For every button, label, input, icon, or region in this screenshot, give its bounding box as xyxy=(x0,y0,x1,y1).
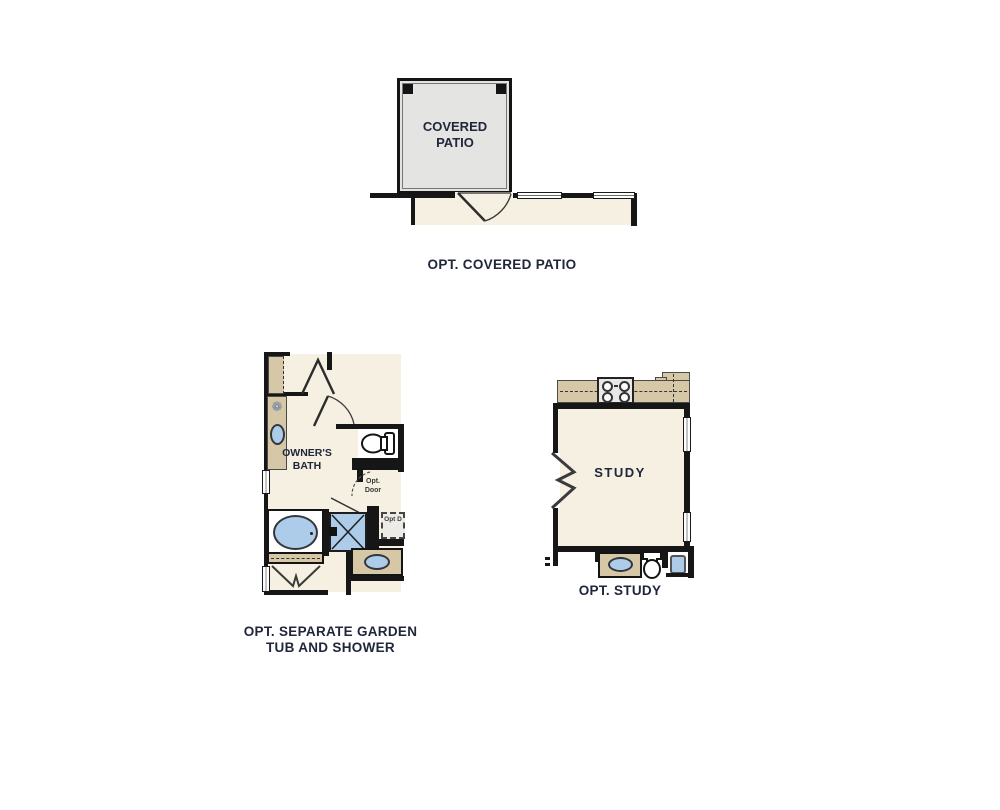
study-room-label: STUDY xyxy=(580,465,660,481)
window-icon xyxy=(593,192,635,199)
floorplan-options-sheet: COVERED PATIO OPT. COVERED PATIO xyxy=(0,0,1000,810)
garden-tub-icon xyxy=(267,509,324,556)
linen-closet xyxy=(268,356,284,394)
door-tick-icon xyxy=(545,557,550,560)
cooktop-icon xyxy=(597,377,634,404)
door-tick-icon xyxy=(545,563,550,566)
opt-d-label: Opt D xyxy=(383,516,403,524)
patio-room-label: COVERED PATIO xyxy=(415,119,495,152)
window-icon xyxy=(262,566,270,592)
wall-break-icon xyxy=(548,450,582,512)
window-icon xyxy=(517,192,562,199)
sink-counter-bottom-wall xyxy=(346,576,404,581)
sink-icon xyxy=(364,554,390,570)
vanity-sink-icon xyxy=(270,424,285,445)
study-caption: OPT. STUDY xyxy=(550,583,690,599)
patio-post-left-icon xyxy=(403,84,413,94)
door-swing-icon xyxy=(450,190,516,226)
shower-bottom-wall xyxy=(666,573,694,577)
wall-corner xyxy=(553,546,558,566)
patio-post-right-icon xyxy=(496,84,506,94)
double-door-icon xyxy=(269,564,323,590)
window-icon xyxy=(683,417,691,452)
toilet-icon xyxy=(640,550,664,580)
toilet-icon xyxy=(359,431,397,457)
shower-right-wall xyxy=(367,506,379,554)
house-floor xyxy=(413,198,632,225)
bath-room-label: OWNER'S BATH xyxy=(277,447,337,473)
toilet-shower-wall xyxy=(662,546,668,568)
tub-deck-shelf xyxy=(267,552,324,564)
covered-patio-caption: OPT. COVERED PATIO xyxy=(377,257,627,273)
tub-drain-icon xyxy=(310,532,313,535)
wall-stub-left xyxy=(411,198,415,225)
bath-bottom-wall xyxy=(264,590,328,595)
toilet-room-bottom-wall xyxy=(352,458,404,470)
door-swing-icon xyxy=(306,394,362,434)
opt-door-label: Opt. Door xyxy=(360,478,386,496)
opt-d-bottom-wall xyxy=(374,539,404,546)
shower-icon xyxy=(329,512,367,552)
window-icon xyxy=(262,470,270,494)
flower-decor-icon: ❁ xyxy=(269,399,285,415)
counter-dashed-line xyxy=(673,374,674,402)
shower-pan-icon xyxy=(670,555,686,574)
door-swing-icon xyxy=(294,350,340,396)
bath-caption: OPT. SEPARATE GARDEN TUB AND SHOWER xyxy=(238,624,423,657)
opt-d-box: Opt D xyxy=(381,512,405,539)
shower-valve-icon xyxy=(329,527,337,536)
sink-icon xyxy=(608,557,633,572)
window-icon xyxy=(683,512,691,542)
